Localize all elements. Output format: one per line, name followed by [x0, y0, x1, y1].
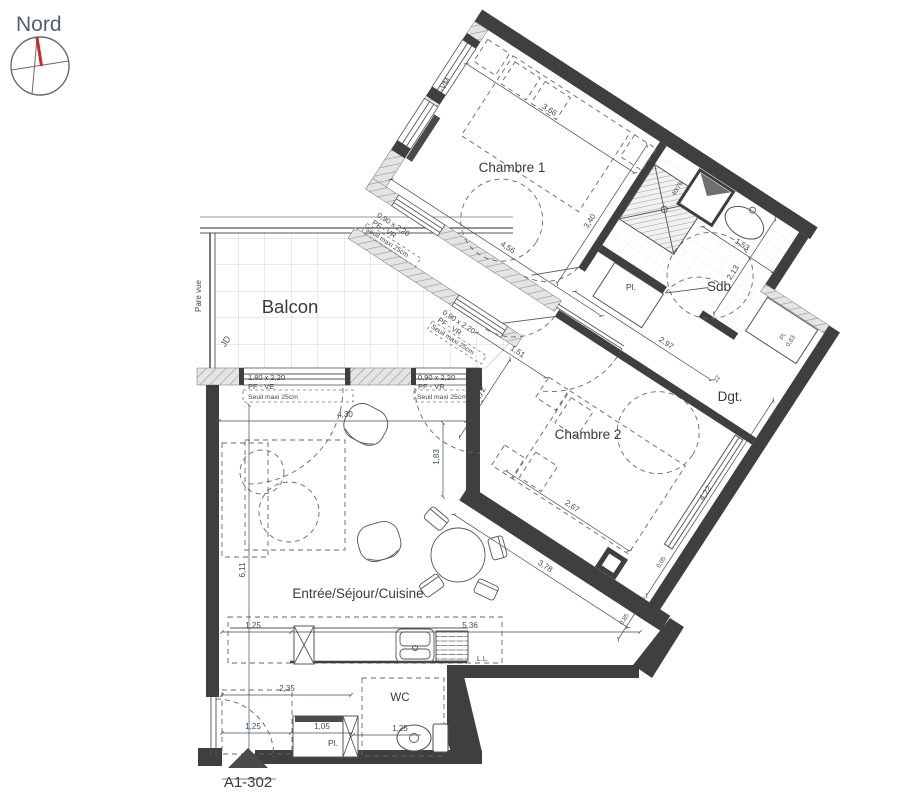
armchair-2 — [354, 518, 405, 565]
dim-183: 1,83 — [432, 449, 441, 465]
dim-085: 0,85 — [618, 612, 631, 626]
closet-notch — [746, 297, 818, 363]
wc-room — [362, 678, 448, 756]
dim-125c: 1,25 — [392, 724, 408, 733]
wall-chambre2-bottom — [459, 485, 670, 631]
compass-north-label: Nord — [16, 13, 62, 36]
dim-536: 5,36 — [462, 621, 478, 630]
kitchen — [228, 617, 502, 664]
wall-left — [206, 385, 219, 697]
dim-430: 4,30 — [337, 410, 353, 419]
pare-vue-label: Pare vue — [194, 279, 203, 312]
wc-label: WC — [390, 692, 409, 704]
armchair-1 — [339, 398, 393, 450]
dim-297: 2,97 — [657, 335, 675, 351]
stove — [436, 631, 468, 661]
chambre2-label: Chambre 2 — [555, 427, 622, 442]
wall-hatched-left — [197, 368, 243, 385]
wall-wc-right — [447, 668, 482, 764]
sdb-label: Sdb — [707, 279, 731, 294]
door-size-label: 80 /14 — [447, 672, 464, 678]
ll-label: L.L. — [477, 656, 489, 663]
compass-needle-icon — [37, 38, 42, 67]
door-ref-label: A1-302 — [224, 774, 272, 791]
floor-plan-page: Nord Pare vue JD Balcon — [0, 0, 924, 800]
wall-hatched-mid — [350, 368, 415, 385]
dim-456: 4,56 — [499, 239, 517, 255]
sejour-label: Entrée/Séjour/Cuisine — [292, 586, 423, 601]
pl-entry-label: Pl. — [328, 738, 338, 748]
dim-151: 1,51 — [509, 344, 527, 360]
clearance-circle-ch1 — [445, 163, 558, 276]
dim-105: 1,05 — [314, 722, 330, 731]
balcony-label: Balcon — [262, 296, 319, 317]
dim-267: 2,67 — [563, 498, 581, 514]
dim-125b: 1,25 — [245, 722, 261, 731]
dim-022: 22 — [712, 374, 722, 384]
window1-seuil: Seuil maxi 25cm — [248, 394, 298, 401]
wall-south — [447, 665, 639, 678]
pl-sdb-label: Pl. — [626, 282, 636, 292]
window2-type: PF - VR — [418, 382, 445, 391]
window1-size: 1,80 x 2,20 — [248, 373, 285, 382]
rug — [245, 440, 345, 550]
window1-type: PF - VE — [248, 382, 274, 391]
kitchen-sink — [396, 629, 434, 662]
window2-seuil: Seuil maxi 25cm — [417, 394, 467, 401]
floor-plan-canvas: Nord Pare vue JD Balcon — [0, 0, 924, 800]
dim-611: 6,11 — [238, 562, 247, 578]
dims-orthogonal: 6,11 4,30 1,83 1,25 5,36 2,35 1,25 1,05 … — [219, 405, 640, 757]
chambre1-label: Chambre 1 — [479, 160, 546, 175]
pouf-1 — [240, 450, 284, 494]
dgt-label: Dgt. — [718, 389, 743, 404]
window2-size: 0,90 x 2,20 — [418, 373, 455, 382]
dim-235: 2,35 — [279, 684, 295, 693]
dim-005: 0,05 — [655, 555, 668, 569]
dim-378: 3,78 — [536, 558, 554, 574]
compass: Nord — [11, 13, 69, 95]
wall-corner-bottom-left — [198, 748, 222, 766]
dim-125a: 1,25 — [245, 621, 261, 630]
wall-right-main — [640, 325, 840, 624]
dim-340: 3,40 — [582, 212, 598, 230]
